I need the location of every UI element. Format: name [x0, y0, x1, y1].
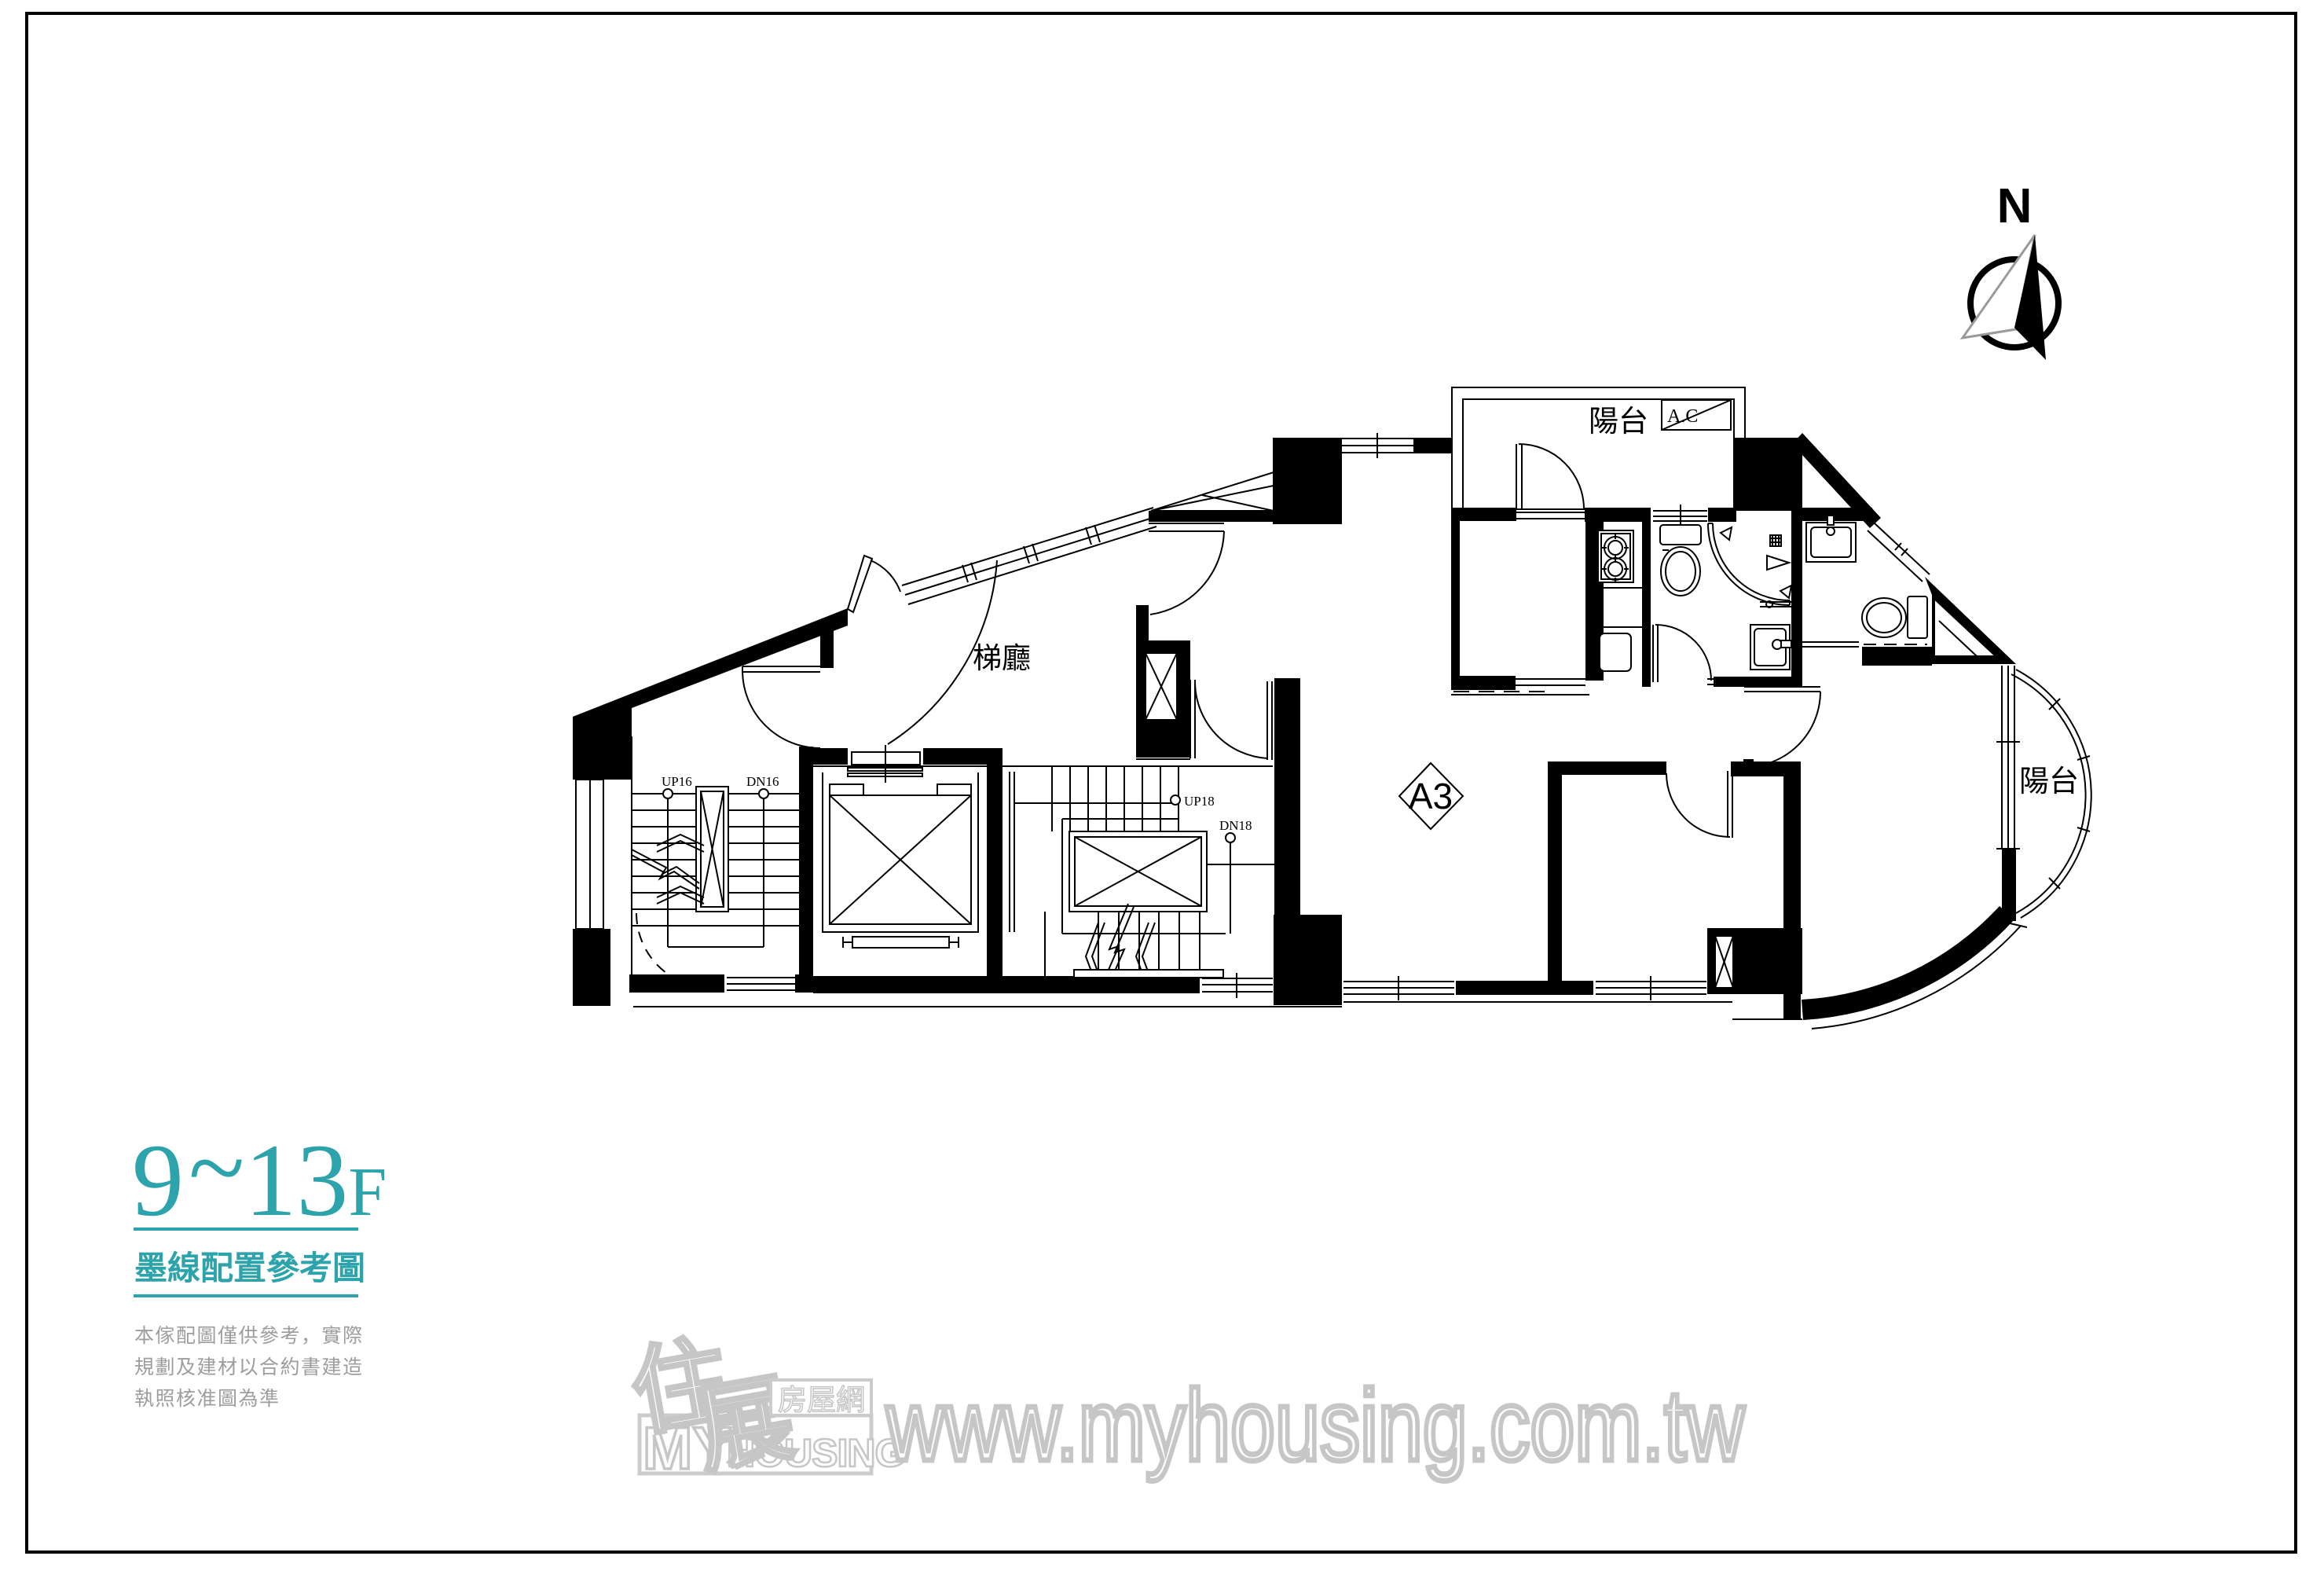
svg-text:A3: A3 — [1409, 776, 1453, 817]
svg-text:UP16: UP16 — [662, 774, 692, 789]
svg-text:A.C: A.C — [1667, 406, 1698, 427]
svg-text:DN18: DN18 — [1219, 818, 1252, 833]
svg-text:www.myhousing.com.tw: www.myhousing.com.tw — [885, 1369, 1745, 1482]
svg-text:墨線配置參考圖: 墨線配置參考圖 — [134, 1250, 365, 1286]
svg-text:本傢配圖僅供參考，實際: 本傢配圖僅供參考，實際 — [134, 1325, 364, 1347]
svg-text:規劃及建材以合約書建造: 規劃及建材以合約書建造 — [134, 1356, 364, 1378]
svg-text:陽台: 陽台 — [2019, 765, 2079, 798]
svg-text:執照核准圖為準: 執照核准圖為準 — [134, 1388, 280, 1410]
svg-text:梯廳: 梯廳 — [973, 642, 1031, 675]
svg-text:N: N — [1997, 179, 2033, 233]
svg-text:UP18: UP18 — [1184, 794, 1215, 809]
svg-text:DN16: DN16 — [746, 774, 779, 789]
svg-text:陽台: 陽台 — [1589, 406, 1648, 439]
svg-text:房屋網: 房屋網 — [778, 1384, 865, 1416]
